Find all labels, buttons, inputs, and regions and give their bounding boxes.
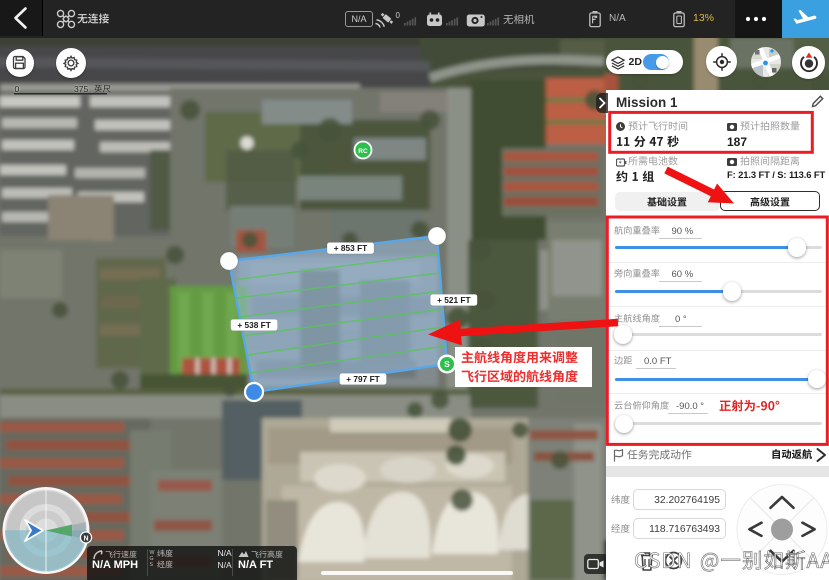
svg-text:+ 797 FT: + 797 FT [346,374,379,384]
svg-text:+ 853 FT: + 853 FT [334,243,367,253]
svg-text:+ 521 FT: + 521 FT [437,295,470,305]
svg-text:S: S [444,359,450,369]
svg-text:RC: RC [358,148,368,155]
svg-text:N: N [83,535,88,542]
svg-text:+ 538 FT: + 538 FT [237,320,270,330]
